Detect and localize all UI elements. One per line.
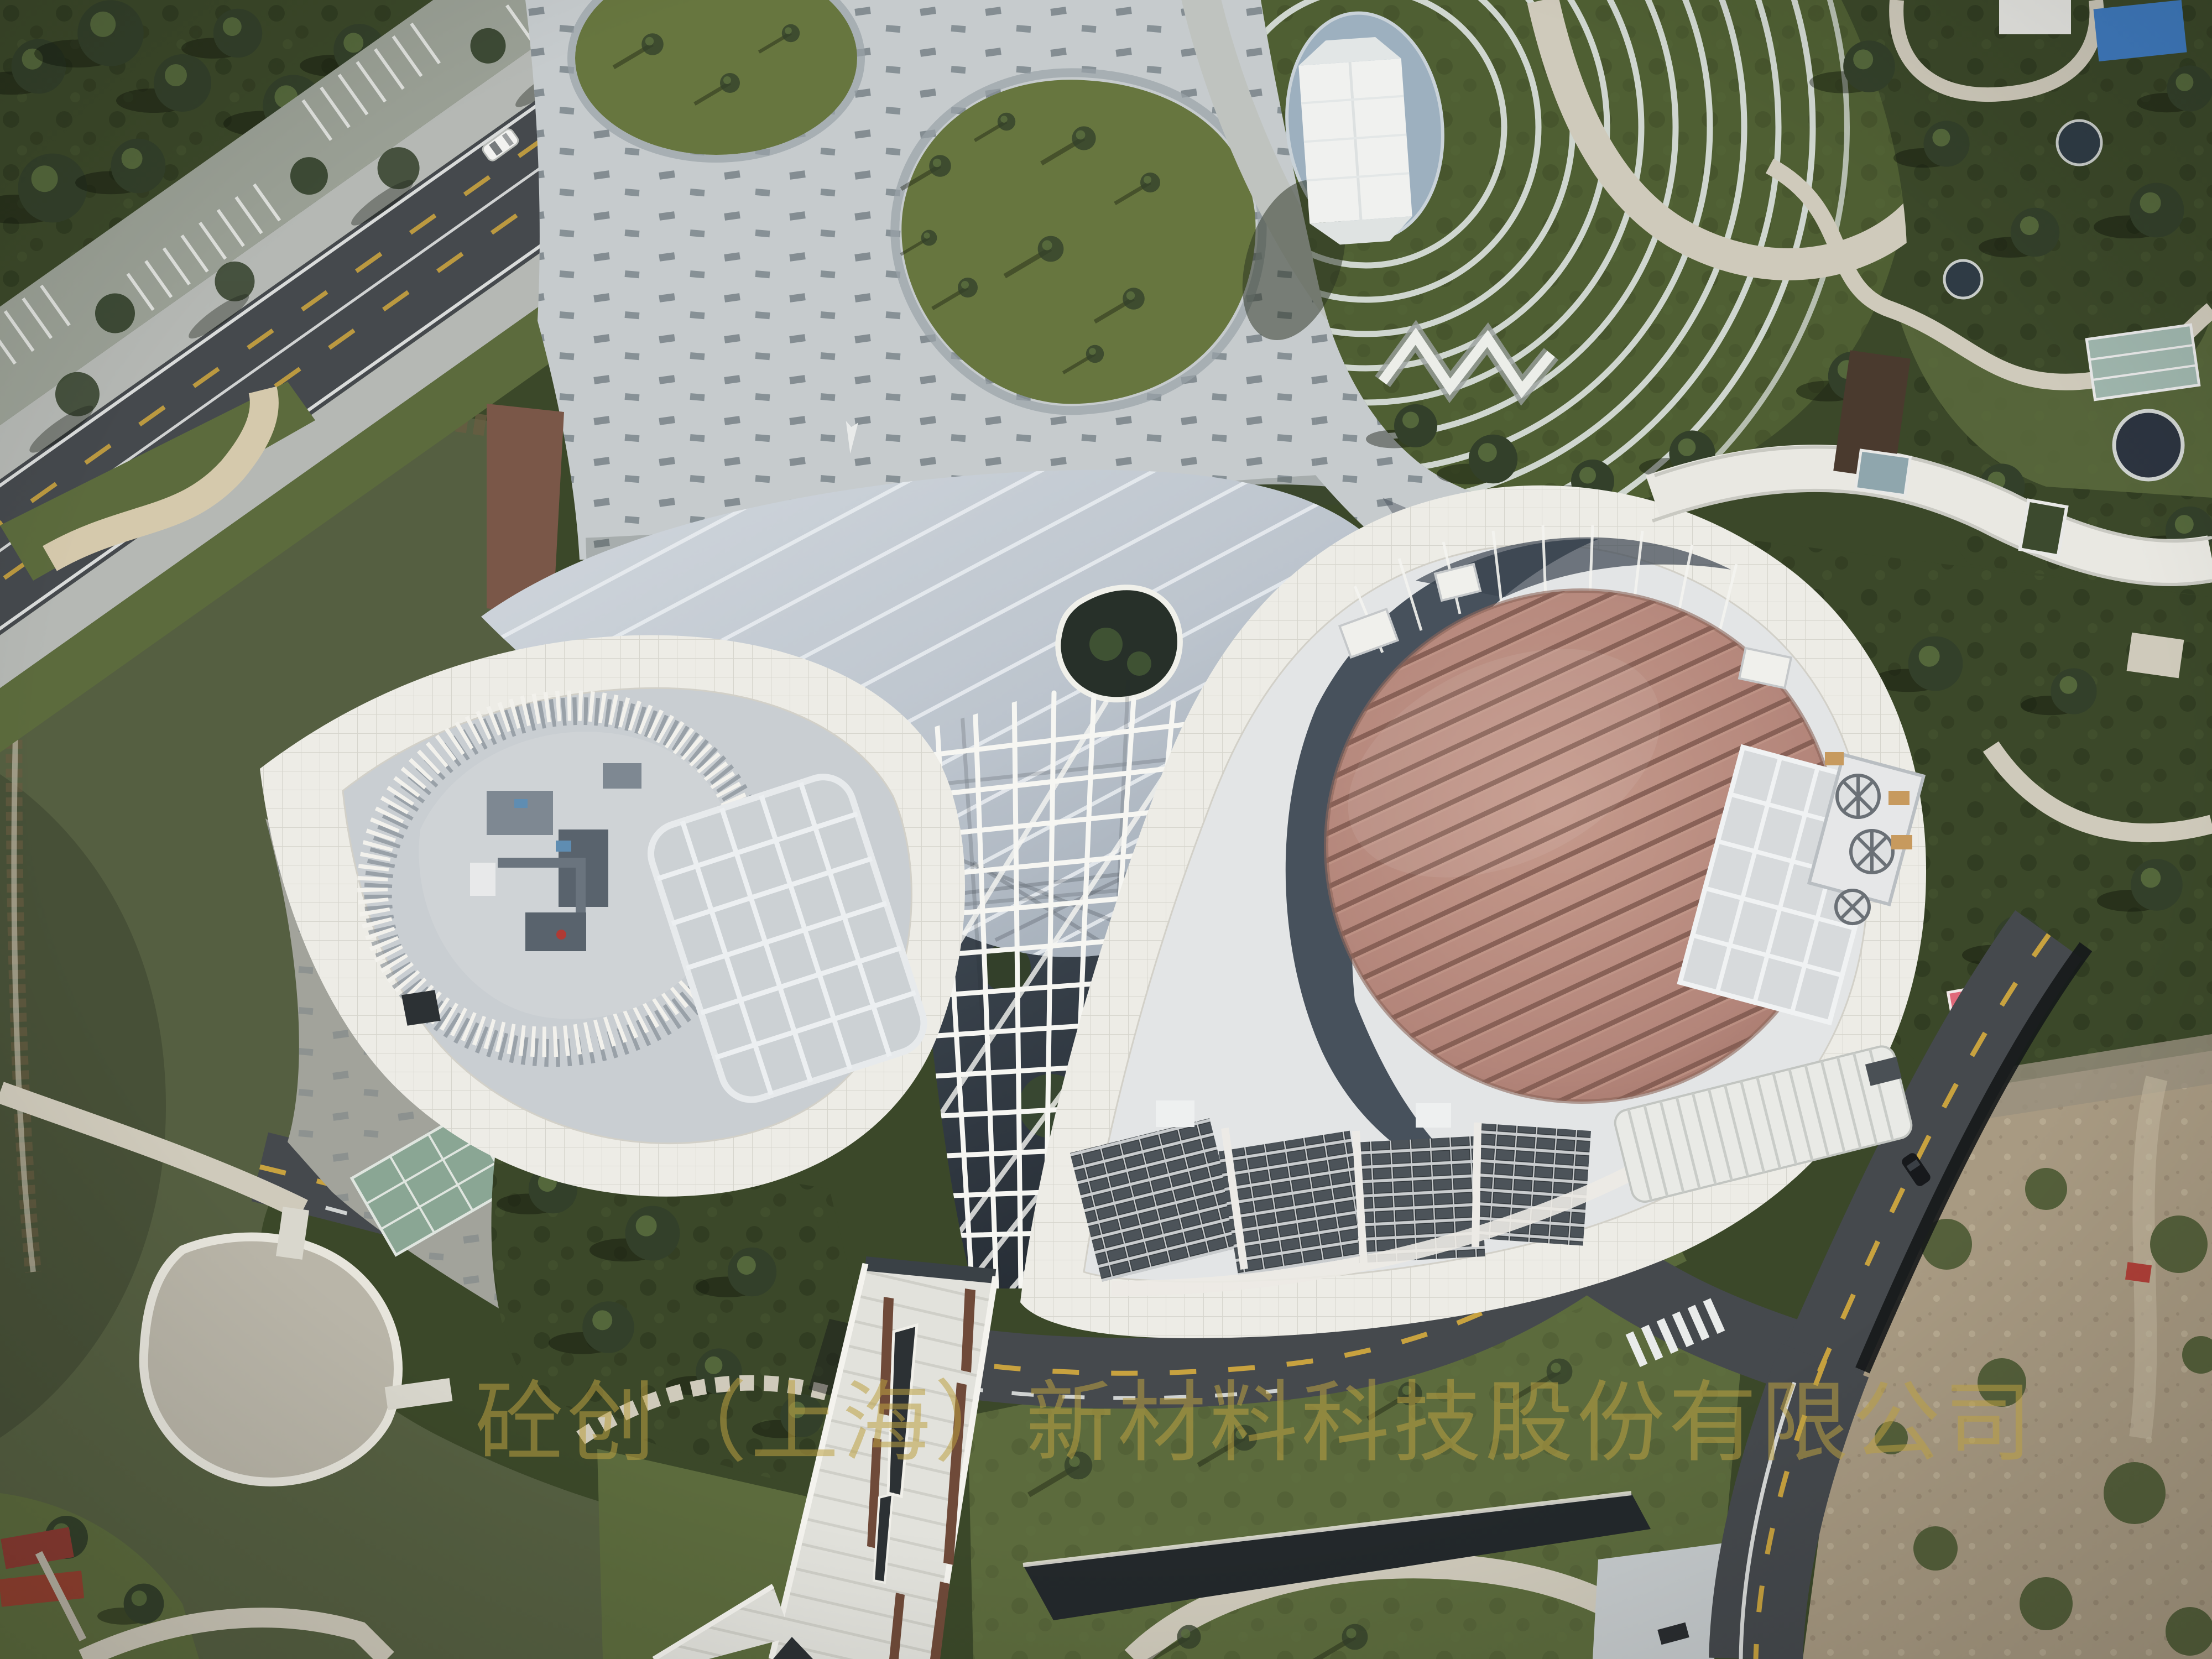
- aerial-photo: 砼创（上海）新材料科技股份有限公司: [0, 0, 2212, 1659]
- watermark-text: 砼创（上海）新材料科技股份有限公司: [475, 1371, 2036, 1474]
